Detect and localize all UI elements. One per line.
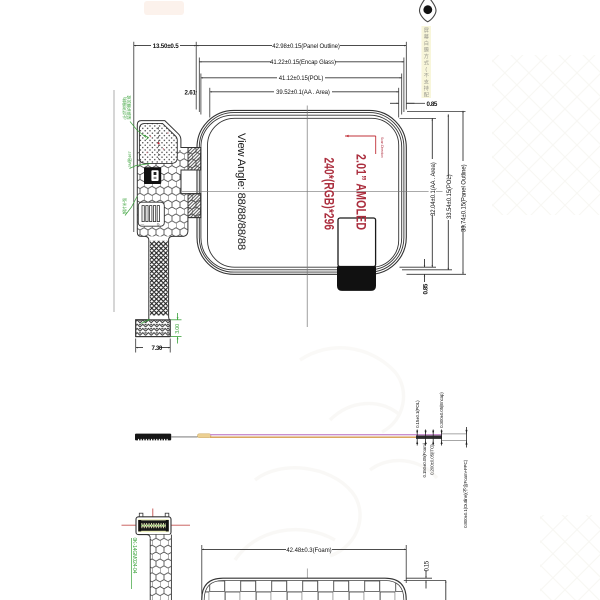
svg-text:13.50±0.5: 13.50±0.5 [153, 43, 179, 50]
svg-text:—: — [141, 222, 145, 226]
svg-text:2.61: 2.61 [184, 89, 196, 96]
svg-text:方: 方 [424, 52, 429, 60]
svg-text:膜: 膜 [424, 46, 429, 54]
svg-text:幕: 幕 [424, 33, 430, 41]
svg-text:不: 不 [424, 72, 429, 79]
svg-text:3.00: 3.00 [175, 324, 181, 334]
svg-text:0.85: 0.85 [427, 101, 438, 108]
svg-text:3M胎467: 3M胎467 [126, 150, 132, 167]
svg-text:(出货时撤除): (出货时撤除) [121, 96, 127, 119]
svg-text:白: 白 [424, 39, 429, 47]
svg-text:支: 支 [424, 78, 429, 86]
svg-text:钢片补强: 钢片补强 [121, 198, 127, 214]
svg-text:240*(RGB)*296: 240*(RGB)*296 [321, 158, 337, 231]
svg-text:0.800±0.1(Outline)(不含Foam+FPC): 0.800±0.1(Outline)(不含Foam+FPC) [462, 459, 469, 528]
svg-text:式: 式 [424, 59, 430, 67]
svg-text:0.85: 0.85 [422, 283, 429, 294]
svg-text:Scan Direction: Scan Direction [380, 137, 384, 158]
svg-text:33.54±0.15(POL): 33.54±0.15(POL) [447, 174, 453, 219]
svg-text:33.74±0.15(Panel Outline): 33.74±0.15(Panel Outline) [462, 164, 468, 232]
svg-text:2.01” AMOLED: 2.01” AMOLED [353, 154, 369, 230]
svg-text:0.300±0.05(Encap): 0.300±0.05(Encap) [439, 392, 444, 428]
svg-text:42.98±0.15(Panel Outline): 42.98±0.15(Panel Outline) [272, 44, 340, 50]
svg-text:0.150±0.05(Foam): 0.150±0.05(Foam) [422, 442, 427, 477]
svg-text:41.12±0.15(POL): 41.12±0.15(POL) [279, 76, 324, 82]
svg-text:32.04±0.1(AA . Area): 32.04±0.1(AA . Area) [431, 162, 437, 216]
svg-text:7.30: 7.30 [152, 345, 163, 352]
svg-text:42.48±0.3(Foam): 42.48±0.3(Foam) [286, 548, 331, 554]
svg-text:G: G [157, 222, 160, 226]
svg-text:0K-14GM024-04: 0K-14GM024-04 [131, 538, 137, 574]
svg-text:39.52±0.1(AA . Area): 39.52±0.1(AA . Area) [276, 90, 330, 96]
svg-text:0.15: 0.15 [424, 560, 430, 571]
svg-text:41.22±0.15(Encap Glass): 41.22±0.15(Encap Glass) [270, 60, 336, 66]
svg-text:持: 持 [424, 84, 429, 92]
svg-text:配: 配 [424, 92, 430, 99]
svg-text:View Angle: 88/88/88/88: View Angle: 88/88/88/88 [235, 133, 247, 250]
svg-text:0.15±0.1(POL): 0.15±0.1(POL) [415, 400, 420, 428]
svg-text:0.200±0.05(ITO): 0.200±0.05(ITO) [430, 444, 435, 475]
svg-text:屏: 屏 [424, 27, 429, 34]
